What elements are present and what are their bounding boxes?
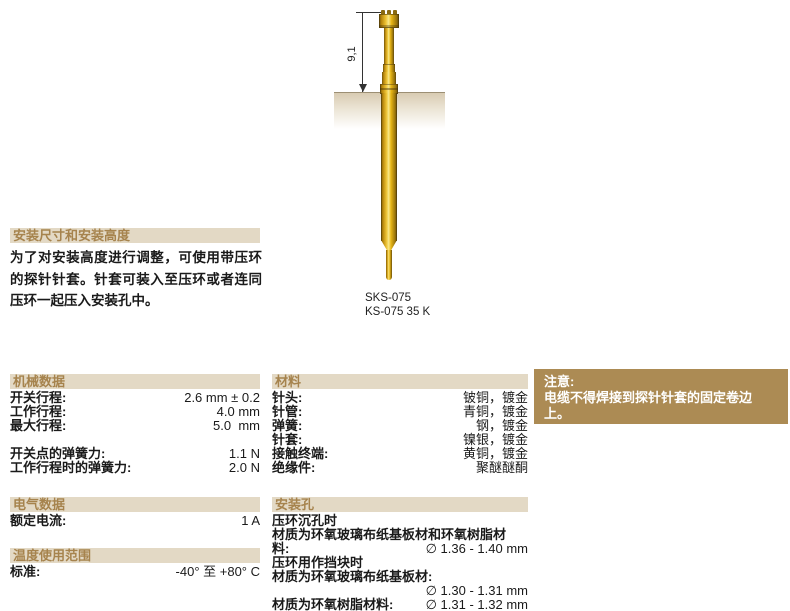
- section-title-temperature: 温度使用范围: [10, 548, 260, 563]
- spec-value: ∅ 1.30 - 1.31 mm: [426, 584, 528, 598]
- spec-row: 压环用作挡块时: [272, 556, 528, 570]
- section-mounting: 安装孔 压环沉孔时 材质为环氧玻璃布纸基板材和环氧树脂材 料: ∅ 1.36 -…: [272, 497, 528, 611]
- mounting-rows: 压环沉孔时 材质为环氧玻璃布纸基板材和环氧树脂材 料: ∅ 1.36 - 1.4…: [272, 514, 528, 611]
- probe-tip: [386, 250, 392, 280]
- spec-row: 材质为环氧玻璃布纸基板材:: [272, 570, 528, 584]
- mechanical-rows: 开关行程: 2.6 mm ± 0.2 工作行程: 4.0 mm 最大行程: 5.…: [10, 391, 260, 475]
- probe-head: [379, 14, 399, 28]
- dimension-line: [362, 12, 363, 92]
- spec-row: 绝缘件: 聚醚醚酮: [272, 461, 528, 475]
- spec-row: 针头: 铍铜，镀金: [272, 391, 528, 405]
- spec-value: 镍银，镀金: [463, 433, 528, 447]
- datasheet-page: 9,1 SKS-075 KS-075 35 K 安装尺寸和安装高度 为了对安装高…: [0, 0, 790, 611]
- section-mechanical: 机械数据 开关行程: 2.6 mm ± 0.2 工作行程: 4.0 mm 最大行…: [10, 374, 260, 475]
- section-install: 安装尺寸和安装高度 为了对安装高度进行调整，可使用带压环的探针针套。针套可装入至…: [10, 228, 260, 312]
- spec-row: 最大行程: 5.0 mm: [10, 419, 260, 433]
- section-title-install: 安装尺寸和安装高度: [10, 228, 260, 243]
- electrical-rows: 额定电流: 1 A: [10, 514, 260, 528]
- spec-row: 压环沉孔时: [272, 514, 528, 528]
- dimension-arrow-icon: [359, 84, 367, 92]
- spec-row: 开关点的弹簧力: 1.1 N: [10, 447, 260, 461]
- model-labels: SKS-075 KS-075 35 K: [365, 292, 430, 319]
- spec-row: 工作行程: 4.0 mm: [10, 405, 260, 419]
- model-number-1: SKS-075: [365, 292, 430, 306]
- probe-collar-ring: [380, 88, 398, 90]
- spec-label: 开关点的弹簧力:: [10, 447, 105, 461]
- spec-value: ∅ 1.36 - 1.40 mm: [426, 542, 528, 556]
- note-body: 电缆不得焊接到探针针套的固定卷边上。: [544, 390, 758, 422]
- spec-label: 针套:: [272, 433, 302, 447]
- spec-row: [10, 433, 260, 447]
- section-electrical: 电气数据 额定电流: 1 A: [10, 497, 260, 528]
- spec-label: 针头:: [272, 391, 302, 405]
- spec-label: 最大行程:: [10, 419, 66, 433]
- spec-label: 压环沉孔时: [272, 514, 337, 528]
- spec-value: 4.0 mm: [217, 405, 260, 419]
- spec-label: 开关行程:: [10, 391, 66, 405]
- temperature-rows: 标准: -40° 至 +80° C: [10, 565, 260, 579]
- spec-value: 黄铜，镀金: [463, 447, 528, 461]
- section-title-mounting: 安装孔: [272, 497, 528, 512]
- spec-value: 2.0 N: [229, 461, 260, 475]
- spec-label: 弹簧:: [272, 419, 302, 433]
- probe-shaft: [384, 28, 394, 65]
- section-title-mechanical: 机械数据: [10, 374, 260, 389]
- note-title: 注意:: [544, 374, 778, 390]
- install-paragraph: 为了对安装高度进行调整，可使用带压环的探针针套。针套可装入至压环或者连同压环一起…: [10, 247, 262, 312]
- materials-rows: 针头: 铍铜，镀金 针管: 青铜，镀金 弹簧: 钢，镀金 针套: 镍银，镀金: [272, 391, 528, 475]
- spec-label: 针管:: [272, 405, 302, 419]
- spec-label: 接触终端:: [272, 447, 328, 461]
- section-temperature: 温度使用范围 标准: -40° 至 +80° C: [10, 548, 260, 579]
- spec-value: -40° 至 +80° C: [176, 565, 260, 579]
- spec-value: 青铜，镀金: [463, 405, 528, 419]
- spec-value: 1.1 N: [229, 447, 260, 461]
- spec-label: 材质为环氧玻璃布纸基板材:: [272, 570, 432, 584]
- note-box: 注意: 电缆不得焊接到探针针套的固定卷边上。: [534, 369, 788, 424]
- probe-diagram: 9,1 SKS-075 KS-075 35 K: [334, 8, 464, 328]
- spec-row: 额定电流: 1 A: [10, 514, 260, 528]
- spec-label: 压环用作挡块时: [272, 556, 363, 570]
- probe-sleeve: [381, 93, 397, 241]
- spec-label: 料:: [272, 542, 289, 556]
- spec-value: 2.6 mm ± 0.2: [184, 391, 260, 405]
- spec-value: 钢，镀金: [476, 419, 528, 433]
- spec-label: 工作行程:: [10, 405, 66, 419]
- probe-taper: [381, 240, 397, 250]
- spec-row: 材质为环氧树脂材料: ∅ 1.31 - 1.32 mm: [272, 598, 528, 611]
- spec-label: 工作行程时的弹簧力:: [10, 461, 131, 475]
- spec-row: 开关行程: 2.6 mm ± 0.2: [10, 391, 260, 405]
- section-title-electrical: 电气数据: [10, 497, 260, 512]
- spec-value: 铍铜，镀金: [463, 391, 528, 405]
- spec-row: 接触终端: 黄铜，镀金: [272, 447, 528, 461]
- spec-row: ∅ 1.30 - 1.31 mm: [272, 584, 528, 598]
- spec-label: 额定电流:: [10, 514, 66, 528]
- spec-label: 材质为环氧玻璃布纸基板材和环氧树脂材: [272, 528, 506, 542]
- spec-label: 材质为环氧树脂材料:: [272, 598, 393, 611]
- spec-row: 针管: 青铜，镀金: [272, 405, 528, 419]
- spec-row: 弹簧: 钢，镀金: [272, 419, 528, 433]
- model-number-2: KS-075 35 K: [365, 306, 430, 320]
- spec-row: 标准: -40° 至 +80° C: [10, 565, 260, 579]
- dimension-tick: [356, 12, 382, 13]
- section-materials: 材料 针头: 铍铜，镀金 针管: 青铜，镀金 弹簧: 钢，镀金: [272, 374, 528, 475]
- spec-row: 针套: 镍银，镀金: [272, 433, 528, 447]
- dimension-label: 9,1: [346, 34, 358, 74]
- spec-value: 1 A: [241, 514, 260, 528]
- spec-row: 工作行程时的弹簧力: 2.0 N: [10, 461, 260, 475]
- spec-label: 标准:: [10, 565, 40, 579]
- section-title-materials: 材料: [272, 374, 528, 389]
- spec-value: 聚醚醚酮: [476, 461, 528, 475]
- spec-value: ∅ 1.31 - 1.32 mm: [426, 598, 528, 611]
- spec-label: 绝缘件:: [272, 461, 315, 475]
- spec-value: 5.0 mm: [213, 419, 260, 433]
- spec-row: 料: ∅ 1.36 - 1.40 mm: [272, 542, 528, 556]
- spec-row: 材质为环氧玻璃布纸基板材和环氧树脂材: [272, 528, 528, 542]
